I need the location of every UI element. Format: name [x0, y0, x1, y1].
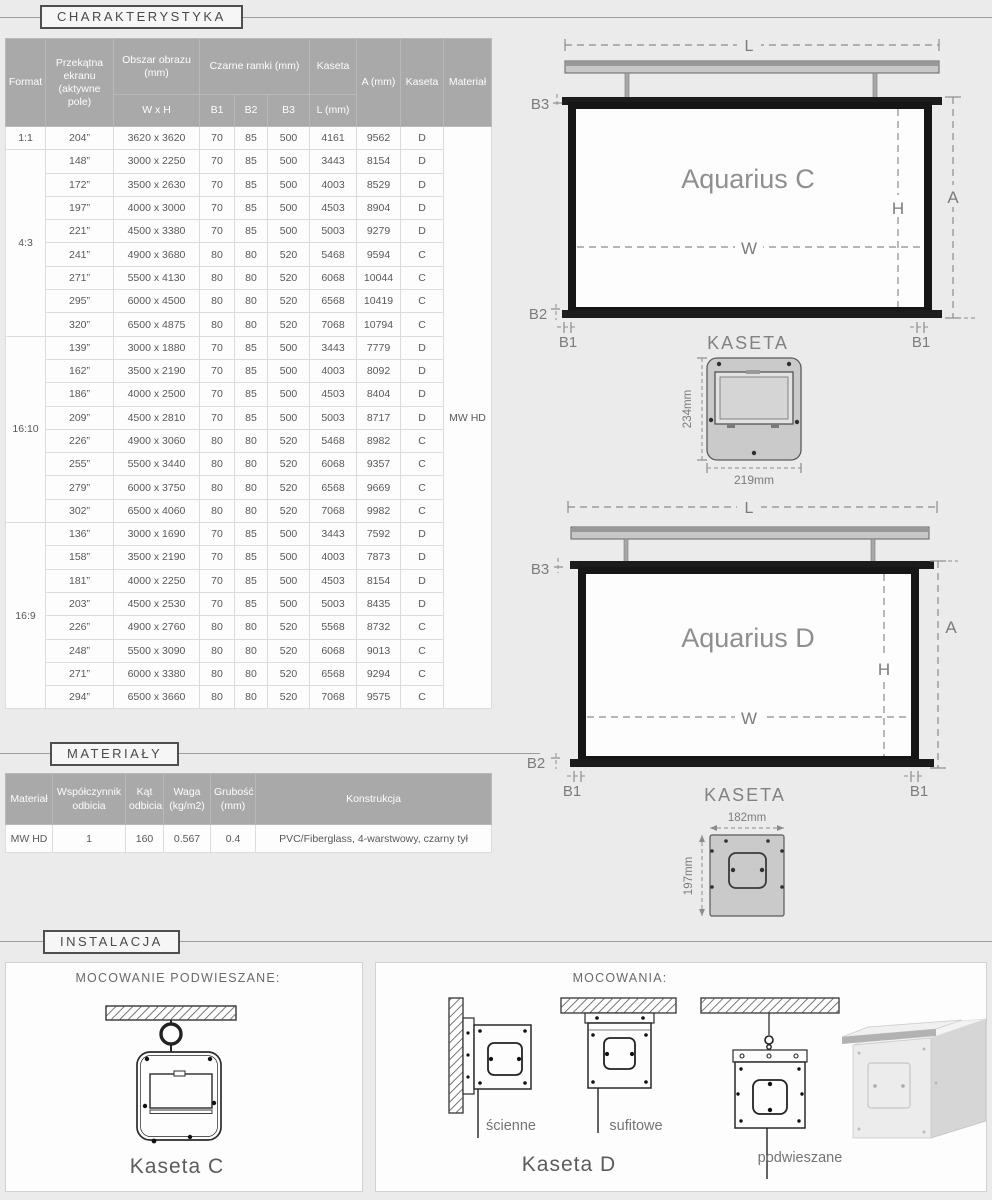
char-cell: 85 [235, 592, 268, 615]
dim-a-label: A [945, 618, 957, 637]
char-cell: 80 [235, 686, 268, 709]
char-cell: C [401, 243, 444, 266]
char-cell: 70 [200, 196, 235, 219]
mount-label-podwieszane: podwieszane [758, 1150, 843, 1166]
char-cell: 9669 [357, 476, 401, 499]
char-cell: 6500 x 4060 [114, 499, 200, 522]
char-cell: 4900 x 2760 [114, 616, 200, 639]
char-cell: 255” [46, 453, 114, 476]
char-cell: 500 [268, 569, 310, 592]
format-cell: 16:9 [6, 523, 46, 709]
char-cell: 500 [268, 592, 310, 615]
char-cell: 9294 [357, 662, 401, 685]
dim-b2: B2 [527, 753, 560, 772]
format-cell: 16:10 [6, 336, 46, 522]
materials-cell: MW HD [6, 825, 53, 853]
char-cell: 80 [235, 639, 268, 662]
char-cell: C [401, 499, 444, 522]
char-cell: D [401, 592, 444, 615]
char-row: 295”6000 x 45008080520656810419C [6, 290, 492, 313]
char-cell: 520 [268, 616, 310, 639]
section-title-charakterystyka: CHARAKTERYSTYKA [40, 5, 243, 29]
char-cell: 520 [268, 290, 310, 313]
char-cell: 4003 [310, 173, 357, 196]
char-cell: 520 [268, 499, 310, 522]
char-cell: 70 [200, 546, 235, 569]
char-row: 226”4900 x 3060808052054688982C [6, 429, 492, 452]
dim-h-label: H [892, 199, 904, 218]
char-cell: 4500 x 3380 [114, 220, 200, 243]
materials-table-head: MateriałWspółczynnik odbiciaKąt odbiciaW… [6, 774, 492, 825]
materials-cell: PVC/Fiberglass, 4-warstwowy, czarny tył [256, 825, 492, 853]
char-cell: 4000 x 2250 [114, 569, 200, 592]
char-cell: 9279 [357, 220, 401, 243]
dim-w-label: W [741, 709, 757, 728]
char-cell: 10044 [357, 266, 401, 289]
char-cell: 520 [268, 429, 310, 452]
char-cell: 7068 [310, 499, 357, 522]
char-cell: 271” [46, 662, 114, 685]
char-cell: C [401, 686, 444, 709]
char-cell: 70 [200, 173, 235, 196]
char-cell: 241” [46, 243, 114, 266]
char-cell: C [401, 290, 444, 313]
char-cell: 70 [200, 220, 235, 243]
char-cell: 520 [268, 686, 310, 709]
char-cell: 520 [268, 476, 310, 499]
col-w-x-h: W x H [114, 95, 200, 127]
char-cell: 4003 [310, 546, 357, 569]
char-cell: 85 [235, 220, 268, 243]
ceiling-hatch [106, 1006, 236, 1020]
char-cell: 70 [200, 150, 235, 173]
char-cell: 3000 x 2250 [114, 150, 200, 173]
char-cell: 5003 [310, 406, 357, 429]
col-kaseta-group: Kaseta [310, 39, 357, 95]
char-cell: 6568 [310, 662, 357, 685]
material-cell: MW HD [444, 127, 492, 709]
col-b1: B1 [200, 95, 235, 127]
char-cell: 6568 [310, 476, 357, 499]
char-cell: 5468 [310, 429, 357, 452]
char-cell: 9357 [357, 453, 401, 476]
svg-text:B2: B2 [529, 306, 547, 323]
panel-caption: Kaseta D [494, 1153, 644, 1177]
cassette-bar-shade [566, 62, 938, 66]
char-cell: 295” [46, 290, 114, 313]
char-row: 162”3500 x 2190708550040038092D [6, 359, 492, 382]
char-cell: 70 [200, 383, 235, 406]
section-title-text: INSTALACJA [60, 934, 163, 949]
char-cell: 4500 x 2810 [114, 406, 200, 429]
col-l-mm: L (mm) [310, 95, 357, 127]
char-cell: 186” [46, 383, 114, 406]
char-row: 255”5500 x 3440808052060689357C [6, 453, 492, 476]
materialy-table: MateriałWspółczynnik odbiciaKąt odbiciaW… [5, 773, 492, 853]
char-cell: 80 [235, 313, 268, 336]
char-cell: 221” [46, 220, 114, 243]
dim-b3: B3 [531, 94, 562, 113]
char-cell: 226” [46, 616, 114, 639]
char-cell: 4503 [310, 196, 357, 219]
char-cell: 500 [268, 127, 310, 150]
char-cell: 85 [235, 127, 268, 150]
char-cell: 6068 [310, 639, 357, 662]
char-cell: 520 [268, 453, 310, 476]
char-cell: 9013 [357, 639, 401, 662]
char-table-head: Format Przekątna ekranu (aktywne pole) O… [6, 39, 492, 127]
char-cell: 80 [235, 476, 268, 499]
char-cell: 85 [235, 546, 268, 569]
char-cell: 136” [46, 523, 114, 546]
char-cell: 3443 [310, 336, 357, 359]
dim-b1-left: B1 [557, 322, 578, 351]
char-cell: 7592 [357, 523, 401, 546]
dim-l: L [565, 34, 939, 55]
materials-header-cell: Grubość (mm) [211, 774, 256, 825]
char-cell: 9982 [357, 499, 401, 522]
hanging-rod-right [873, 73, 877, 99]
screen-title: Aquarius D [681, 623, 815, 653]
svg-text:B1: B1 [910, 783, 928, 800]
char-cell: 4000 x 2500 [114, 383, 200, 406]
char-row: 172”3500 x 2630708550040038529D [6, 173, 492, 196]
cs-width-label: 219mm [734, 473, 774, 487]
char-cell: 4161 [310, 127, 357, 150]
cs-height-label: 234mm [682, 390, 694, 428]
mount-label-sufitowe: sufitowe [609, 1118, 662, 1134]
char-cell: 70 [200, 523, 235, 546]
col-kaseta: Kaseta [401, 39, 444, 127]
char-cell: D [401, 150, 444, 173]
char-cell: 3000 x 1690 [114, 523, 200, 546]
char-cell: 500 [268, 546, 310, 569]
char-cell: D [401, 173, 444, 196]
char-cell: 6000 x 3380 [114, 662, 200, 685]
dim-b3: B3 [531, 558, 563, 578]
col-format: Format [6, 39, 46, 127]
char-cell: 3000 x 1880 [114, 336, 200, 359]
char-cell: 9594 [357, 243, 401, 266]
char-cell: 80 [235, 616, 268, 639]
screen-bottom-bar [570, 759, 934, 767]
char-row: 181”4000 x 2250708550045038154D [6, 569, 492, 592]
char-cell: 80 [200, 313, 235, 336]
char-cell: C [401, 616, 444, 639]
char-cell: 500 [268, 173, 310, 196]
char-cell: 320” [46, 313, 114, 336]
kaseta-c-cross-section: 234mm 219mm [682, 358, 801, 487]
char-cell: 70 [200, 406, 235, 429]
char-cell: 80 [200, 243, 235, 266]
ceiling-mount-drawing: sufitowe [561, 998, 676, 1134]
hanging-rod-right [871, 539, 875, 564]
char-row: 16:9136”3000 x 1690708550034437592D [6, 523, 492, 546]
dim-l-label: L [745, 500, 754, 517]
char-cell: 6000 x 4500 [114, 290, 200, 313]
char-cell: 500 [268, 406, 310, 429]
char-cell: 70 [200, 569, 235, 592]
char-cell: 7779 [357, 336, 401, 359]
char-cell: 9575 [357, 686, 401, 709]
char-cell: 80 [235, 266, 268, 289]
char-cell: 500 [268, 150, 310, 173]
char-cell: 8717 [357, 406, 401, 429]
char-cell: 204” [46, 127, 114, 150]
char-cell: 294” [46, 686, 114, 709]
char-cell: 172” [46, 173, 114, 196]
char-cell: D [401, 220, 444, 243]
char-cell: 85 [235, 150, 268, 173]
char-cell: 8732 [357, 616, 401, 639]
kaseta-c-outline [137, 1052, 221, 1143]
section-title-instalacja: INSTALACJA [43, 930, 180, 954]
char-cell: 80 [200, 266, 235, 289]
char-cell: 3443 [310, 150, 357, 173]
char-cell: 5500 x 3440 [114, 453, 200, 476]
char-cell: 3620 x 3620 [114, 127, 200, 150]
screen-title: Aquarius C [681, 164, 815, 194]
char-row: 320”6500 x 48758080520706810794C [6, 313, 492, 336]
char-cell: 271” [46, 266, 114, 289]
char-cell: 5003 [310, 592, 357, 615]
dim-h-label: H [878, 660, 890, 679]
char-cell: 6500 x 3660 [114, 686, 200, 709]
kaseta-heading: KASETA [707, 333, 789, 353]
materials-header-cell: Materiał [6, 774, 53, 825]
dim-l-label: L [745, 38, 754, 55]
char-cell: D [401, 383, 444, 406]
dim-a-label: A [947, 188, 959, 207]
char-cell: 279” [46, 476, 114, 499]
charakterystyka-table: Format Przekątna ekranu (aktywne pole) O… [5, 38, 492, 709]
char-cell: 80 [235, 453, 268, 476]
col-b2: B2 [235, 95, 268, 127]
char-table-body: 1:1204”3620 x 3620708550041619562DMW HD4… [6, 127, 492, 709]
char-cell: 5500 x 3090 [114, 639, 200, 662]
kaseta-d-mount-drawing: ścienne sufitowe [376, 963, 986, 1191]
col-a-mm: A (mm) [357, 39, 401, 127]
char-cell: D [401, 406, 444, 429]
materials-header-cell: Konstrukcja [256, 774, 492, 825]
col-b3: B3 [268, 95, 310, 127]
svg-text:B1: B1 [559, 334, 577, 351]
wall-mount-drawing: ścienne [449, 998, 536, 1138]
char-cell: 158” [46, 546, 114, 569]
char-cell: 500 [268, 523, 310, 546]
char-cell: 226” [46, 429, 114, 452]
char-cell: 302” [46, 499, 114, 522]
char-cell: 500 [268, 383, 310, 406]
char-cell: 80 [200, 662, 235, 685]
char-cell: 7068 [310, 686, 357, 709]
section-title-text: MATERIAŁY [67, 746, 162, 761]
char-cell: 80 [200, 639, 235, 662]
installation-panel-kaseta-d: MOCOWANIA: ścienne [375, 962, 987, 1192]
char-cell: 5468 [310, 243, 357, 266]
materials-cell: 0.4 [211, 825, 256, 853]
aquarius-c-diagram: L Aquarius C W H A B3 B2 B1 [496, 28, 992, 490]
char-cell: D [401, 569, 444, 592]
char-cell: 209” [46, 406, 114, 429]
char-cell: 520 [268, 662, 310, 685]
char-cell: 80 [200, 616, 235, 639]
materials-cell: 0.567 [164, 825, 211, 853]
format-cell: 1:1 [6, 127, 46, 150]
char-cell: 5500 x 4130 [114, 266, 200, 289]
cassette-3d-render [842, 1019, 986, 1138]
char-cell: C [401, 266, 444, 289]
char-cell: C [401, 453, 444, 476]
char-row: 271”6000 x 3380808052065689294C [6, 662, 492, 685]
char-row: 279”6000 x 3750808052065689669C [6, 476, 492, 499]
svg-text:B3: B3 [531, 561, 549, 578]
aquarius-d-diagram: L Aquarius D W H A B3 B2 B1 B1 [496, 495, 992, 925]
char-cell: 80 [200, 499, 235, 522]
char-cell: 85 [235, 569, 268, 592]
char-cell: 80 [235, 243, 268, 266]
materials-header-cell: Kąt odbicia [126, 774, 164, 825]
char-cell: C [401, 429, 444, 452]
char-cell: 3500 x 2190 [114, 546, 200, 569]
svg-text:B1: B1 [912, 334, 930, 351]
char-row: 271”5500 x 41308080520606810044C [6, 266, 492, 289]
char-cell: 8982 [357, 429, 401, 452]
char-cell: D [401, 127, 444, 150]
char-row: 16:10139”3000 x 1880708550034437779D [6, 336, 492, 359]
char-cell: 500 [268, 196, 310, 219]
char-cell: 248” [46, 639, 114, 662]
char-cell: 6000 x 3750 [114, 476, 200, 499]
char-cell: 500 [268, 220, 310, 243]
char-cell: C [401, 313, 444, 336]
dim-a: A [942, 97, 976, 318]
materials-table-row: MW HD11600.5670.4PVC/Fiberglass, 4-warst… [6, 825, 492, 853]
char-cell: 70 [200, 359, 235, 382]
hanging-rod-left [624, 539, 628, 564]
format-cell: 4:3 [6, 150, 46, 336]
char-cell: 80 [235, 429, 268, 452]
char-cell: 85 [235, 383, 268, 406]
char-cell: C [401, 662, 444, 685]
svg-text:B1: B1 [563, 783, 581, 800]
section-title-materialy: MATERIAŁY [50, 742, 179, 766]
materials-cell: 160 [126, 825, 164, 853]
screen-surface [586, 574, 911, 756]
char-cell: 3500 x 2190 [114, 359, 200, 382]
char-cell: 3443 [310, 523, 357, 546]
char-cell: D [401, 359, 444, 382]
char-cell: 80 [200, 290, 235, 313]
dim-b2: B2 [529, 304, 560, 323]
svg-text:B2: B2 [527, 755, 545, 772]
char-cell: 85 [235, 336, 268, 359]
materials-header-cell: Waga (kg/m2) [164, 774, 211, 825]
materials-header-cell: Współczynnik odbicia [53, 774, 126, 825]
char-row: 209”4500 x 2810708550050038717D [6, 406, 492, 429]
char-cell: 80 [235, 499, 268, 522]
char-cell: 80 [200, 429, 235, 452]
char-cell: 6500 x 4875 [114, 313, 200, 336]
char-cell: 70 [200, 127, 235, 150]
col-image-area: Obszar obrazu (mm) [114, 39, 200, 95]
char-row: 302”6500 x 4060808052070689982C [6, 499, 492, 522]
char-cell: 4000 x 3000 [114, 196, 200, 219]
panel-caption: Kaseta C [6, 1155, 348, 1179]
col-black-frames: Czarne ramki (mm) [200, 39, 310, 95]
char-row: 197”4000 x 3000708550045038904D [6, 196, 492, 219]
char-cell: 4900 x 3060 [114, 429, 200, 452]
char-cell: 80 [235, 662, 268, 685]
char-cell: 8092 [357, 359, 401, 382]
char-cell: 5003 [310, 220, 357, 243]
char-cell: 500 [268, 359, 310, 382]
hanging-rod-left [625, 73, 629, 99]
cassette-bar-shade [572, 528, 928, 532]
dim-w-label: W [741, 239, 757, 258]
char-cell: 85 [235, 173, 268, 196]
char-cell: 3500 x 2630 [114, 173, 200, 196]
char-cell: 8404 [357, 383, 401, 406]
char-cell: 8904 [357, 196, 401, 219]
char-cell: 181” [46, 569, 114, 592]
char-cell: 197” [46, 196, 114, 219]
char-cell: 148” [46, 150, 114, 173]
char-row: 294”6500 x 3660808052070689575C [6, 686, 492, 709]
char-cell: D [401, 196, 444, 219]
char-row: 1:1204”3620 x 3620708550041619562DMW HD [6, 127, 492, 150]
char-cell: C [401, 639, 444, 662]
dim-a: A [930, 561, 962, 768]
svg-text:B3: B3 [531, 96, 549, 113]
screen-surface [576, 109, 924, 307]
col-material: Materiał [444, 39, 492, 127]
char-cell: 6568 [310, 290, 357, 313]
char-cell: 7873 [357, 546, 401, 569]
char-cell: 162” [46, 359, 114, 382]
char-cell: 520 [268, 639, 310, 662]
char-cell: 80 [235, 290, 268, 313]
char-cell: C [401, 476, 444, 499]
char-cell: 4900 x 3680 [114, 243, 200, 266]
char-cell: D [401, 546, 444, 569]
char-cell: 9562 [357, 127, 401, 150]
dim-b1-right: B1 [910, 322, 931, 351]
char-cell: 4003 [310, 359, 357, 382]
char-cell: 70 [200, 592, 235, 615]
cs-height-label: 197mm [683, 857, 695, 895]
char-cell: 520 [268, 266, 310, 289]
char-cell: 139” [46, 336, 114, 359]
materials-cell: 1 [53, 825, 126, 853]
char-cell: 10794 [357, 313, 401, 336]
char-row: 221”4500 x 3380708550050039279D [6, 220, 492, 243]
char-row: 203”4500 x 2530708550050038435D [6, 592, 492, 615]
dim-b1-right: B1 [904, 771, 928, 800]
char-cell: D [401, 336, 444, 359]
char-cell: 6068 [310, 266, 357, 289]
dim-l: L [568, 496, 937, 517]
char-cell: 8529 [357, 173, 401, 196]
char-cell: 80 [200, 686, 235, 709]
char-cell: D [401, 523, 444, 546]
char-cell: 85 [235, 359, 268, 382]
mount-label-scienne: ścienne [486, 1118, 536, 1134]
char-cell: 500 [268, 336, 310, 359]
installation-panel-kaseta-c: MOCOWANIE PODWIESZANE: Kaseta C [5, 962, 363, 1192]
char-cell: 5568 [310, 616, 357, 639]
char-cell: 85 [235, 196, 268, 219]
